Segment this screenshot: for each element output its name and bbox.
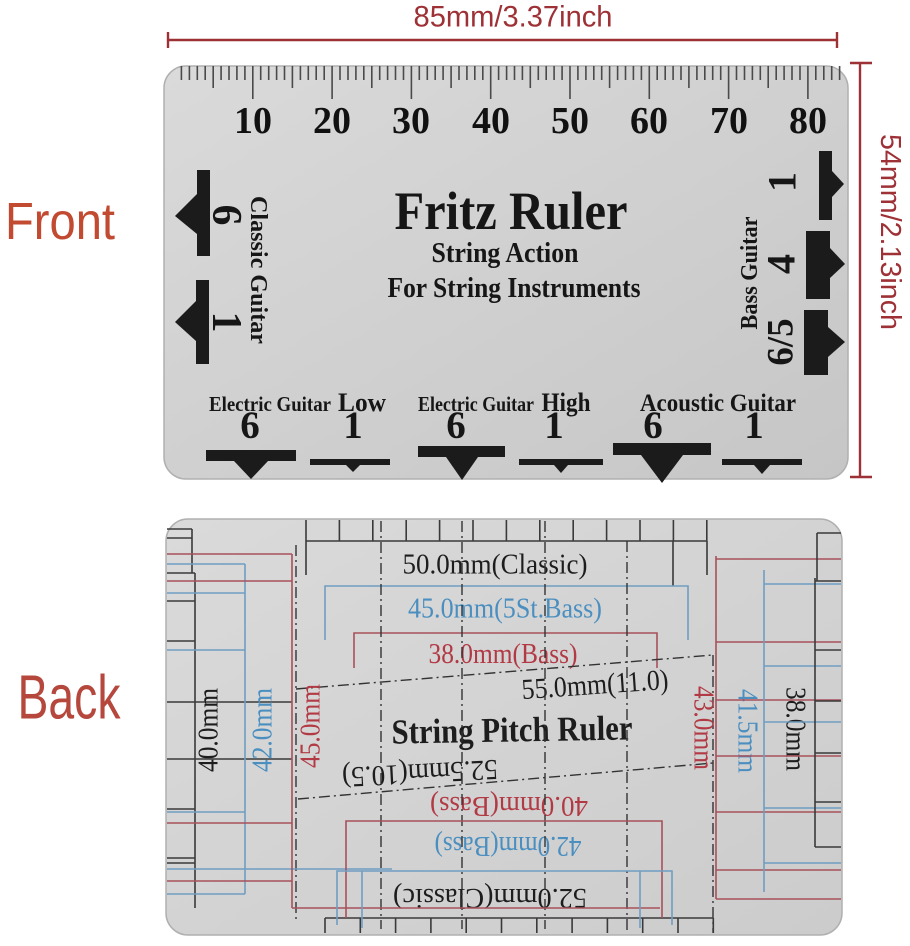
svg-text:6: 6 — [643, 404, 663, 447]
svg-text:85mm/3.37inch: 85mm/3.37inch — [414, 1, 613, 34]
svg-text:43.0mm: 43.0mm — [688, 686, 719, 770]
svg-text:10: 10 — [234, 100, 272, 142]
svg-text:6: 6 — [203, 205, 249, 226]
svg-text:30: 30 — [392, 100, 430, 142]
svg-text:1: 1 — [203, 312, 249, 333]
svg-text:1: 1 — [760, 172, 805, 192]
svg-text:1: 1 — [744, 404, 764, 447]
svg-text:20: 20 — [313, 100, 351, 142]
svg-text:Front: Front — [5, 193, 115, 251]
svg-text:Classic Guitar: Classic Guitar — [245, 196, 271, 344]
svg-text:String Pitch Ruler: String Pitch Ruler — [391, 708, 633, 751]
svg-text:40: 40 — [472, 100, 510, 142]
svg-text:38.0mm(Bass): 38.0mm(Bass) — [429, 638, 578, 670]
svg-text:45.0mm: 45.0mm — [296, 684, 327, 768]
svg-text:1: 1 — [343, 404, 363, 447]
svg-text:40.0mm: 40.0mm — [194, 688, 225, 772]
svg-text:Fritz Ruler: Fritz Ruler — [395, 181, 628, 241]
svg-text:45.0mm(5St.Bass): 45.0mm(5St.Bass) — [408, 594, 602, 625]
svg-text:6/5: 6/5 — [761, 318, 802, 365]
svg-text:60: 60 — [630, 100, 668, 142]
svg-text:50: 50 — [551, 100, 589, 142]
svg-text:41.5mm: 41.5mm — [732, 689, 763, 773]
svg-text:4: 4 — [759, 254, 804, 274]
svg-text:54mm/2.13inch: 54mm/2.13inch — [874, 134, 906, 330]
svg-text:40.0mm(Bass): 40.0mm(Bass) — [430, 790, 588, 822]
svg-text:70: 70 — [710, 100, 748, 142]
svg-text:52.0mm(Classic): 52.0mm(Classic) — [393, 882, 587, 914]
svg-text:Bass Guitar: Bass Guitar — [737, 216, 763, 329]
svg-text:42.0mm: 42.0mm — [248, 688, 279, 772]
svg-text:1: 1 — [544, 404, 564, 447]
svg-text:42.0mm(Bass): 42.0mm(Bass) — [435, 830, 582, 862]
svg-text:Electric Guitar: Electric Guitar — [209, 392, 331, 416]
svg-text:String Action: String Action — [432, 237, 579, 269]
svg-text:Acoustic Guitar: Acoustic Guitar — [640, 390, 796, 417]
svg-text:Electric Guitar: Electric Guitar — [418, 392, 534, 416]
svg-text:6: 6 — [240, 404, 260, 447]
svg-text:For String Instruments: For String Instruments — [388, 272, 641, 304]
svg-text:80: 80 — [789, 100, 827, 142]
svg-text:Back: Back — [18, 664, 122, 733]
svg-text:6: 6 — [446, 404, 466, 447]
svg-text:50.0mm(Classic): 50.0mm(Classic) — [403, 550, 588, 581]
